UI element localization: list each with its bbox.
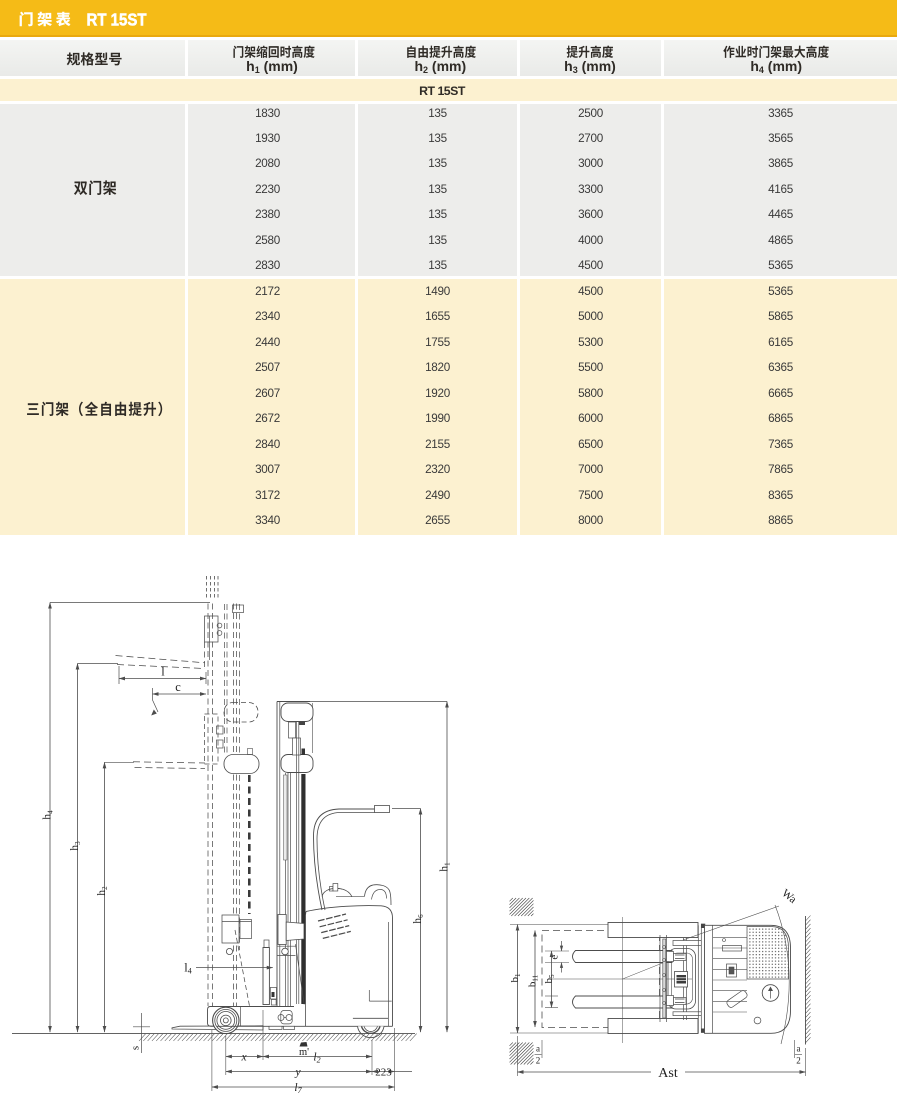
svg-text:2: 2 xyxy=(536,1056,541,1066)
svg-text:h2: h2 xyxy=(96,886,109,896)
svg-text:b11: b11 xyxy=(526,974,539,987)
svg-text:223: 223 xyxy=(375,1066,392,1078)
svg-text:s: s xyxy=(130,1046,142,1050)
svg-text:b1: b1 xyxy=(509,973,522,983)
svg-text:a: a xyxy=(536,1044,540,1054)
svg-text:m': m' xyxy=(299,1047,309,1058)
svg-text:2: 2 xyxy=(796,1056,801,1066)
svg-text:x: x xyxy=(240,1052,247,1064)
svg-text:h4: h4 xyxy=(41,810,54,820)
svg-text:Ast: Ast xyxy=(658,1066,678,1081)
svg-text:h1: h1 xyxy=(438,862,451,872)
svg-text:c: c xyxy=(175,680,181,694)
svg-text:Wa: Wa xyxy=(779,887,798,906)
svg-text:RT 15ST: RT 15ST xyxy=(87,10,147,30)
svg-text:h3: h3 xyxy=(69,841,82,851)
svg-text:l4: l4 xyxy=(184,961,191,976)
svg-text:l7: l7 xyxy=(294,1082,302,1095)
svg-text:l: l xyxy=(161,665,165,679)
svg-text:l2: l2 xyxy=(313,1052,320,1065)
svg-text:a: a xyxy=(797,1044,801,1054)
svg-text:y: y xyxy=(294,1067,301,1079)
svg-text:h6: h6 xyxy=(412,914,425,924)
svg-text:e: e xyxy=(549,955,561,960)
